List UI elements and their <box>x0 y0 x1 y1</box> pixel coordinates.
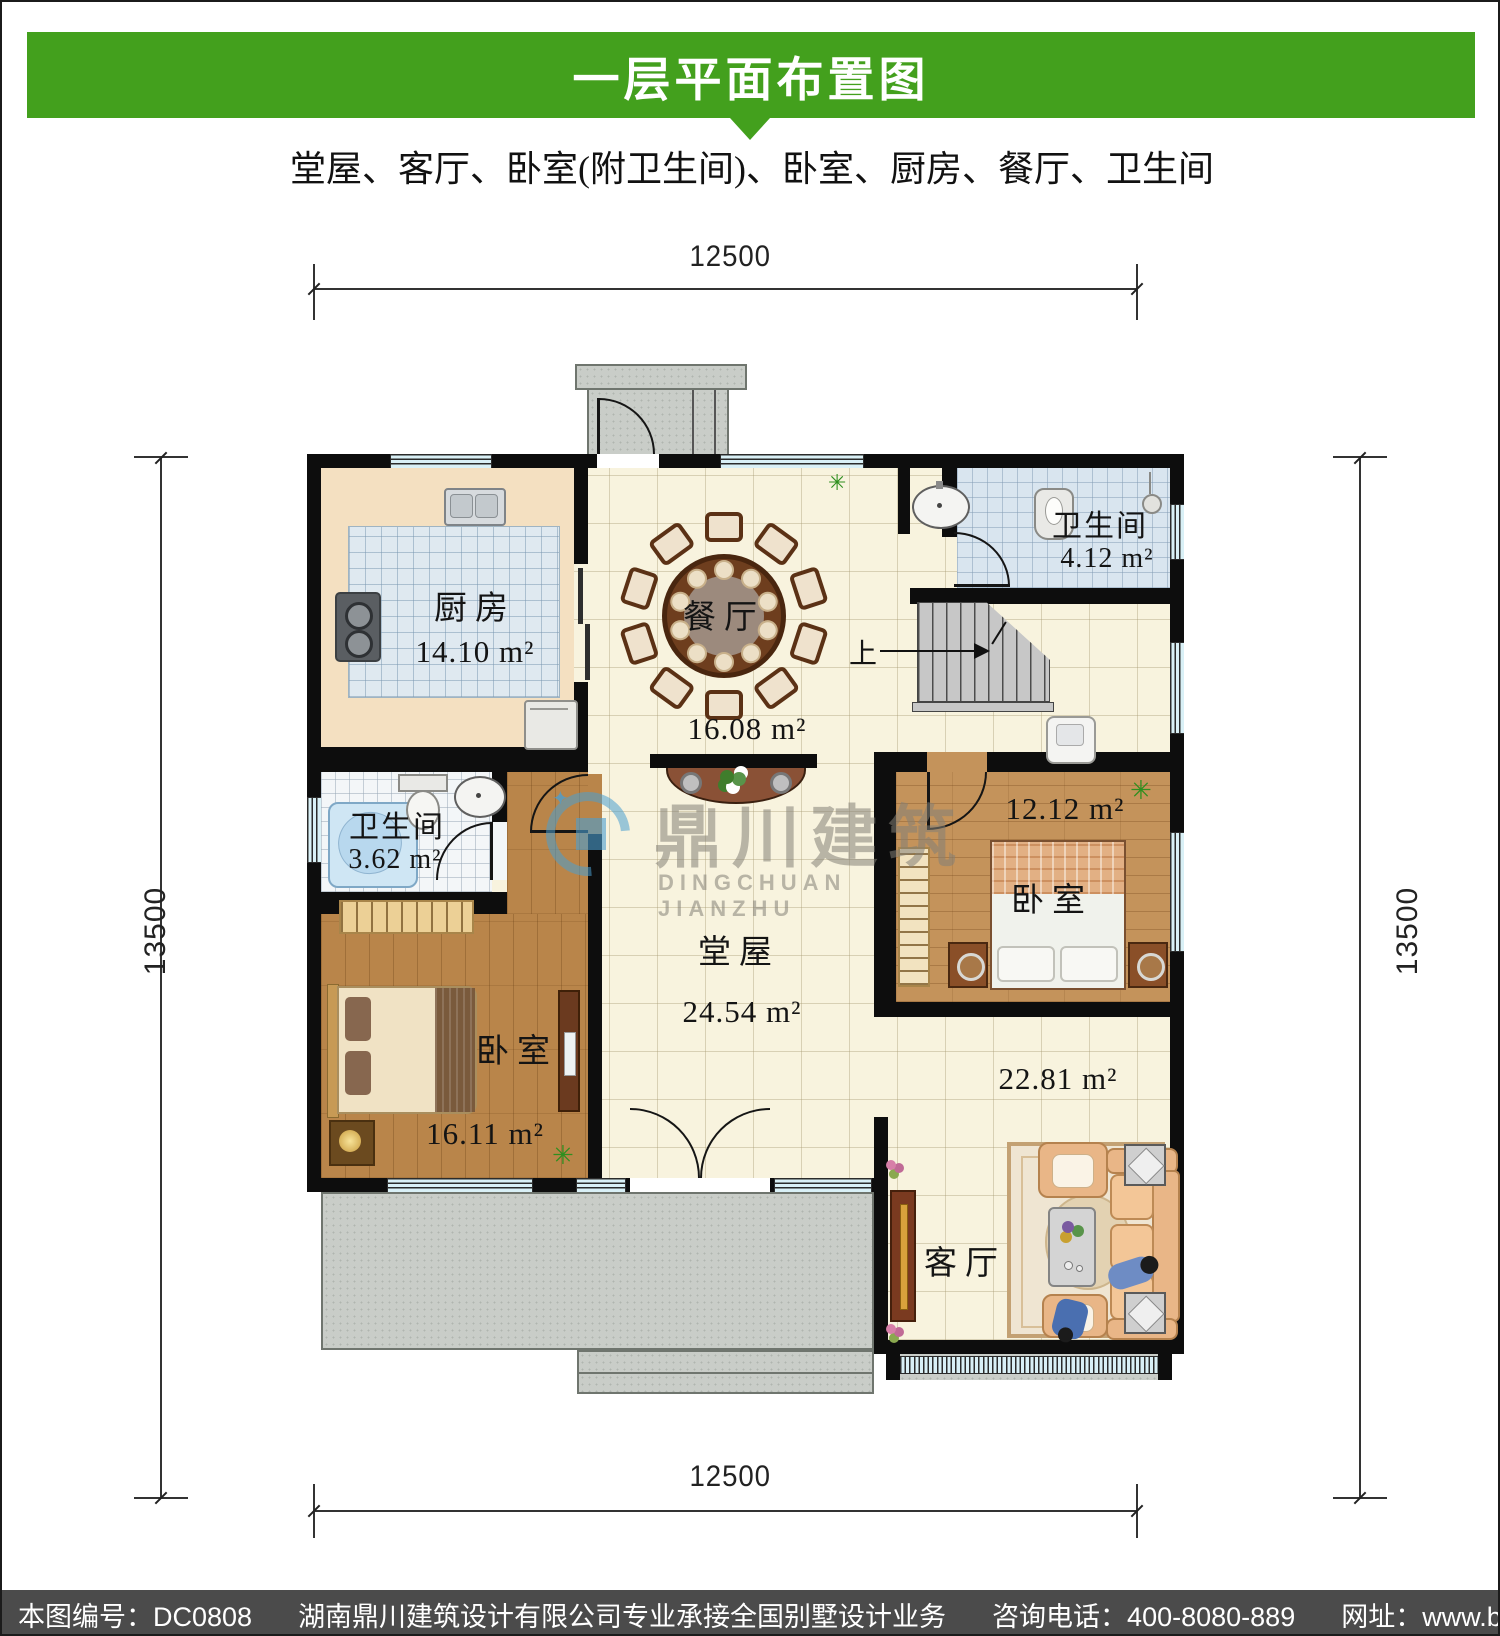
stair-direction-line <box>880 650 980 652</box>
wall-hall-right <box>874 772 896 1002</box>
dim-left-value: 13500 <box>139 887 173 975</box>
door-opening-bath-left <box>492 822 507 880</box>
dining-chair <box>705 512 743 542</box>
wardrobe-right <box>898 847 930 987</box>
wall-bedroom-right-top <box>874 752 1170 772</box>
dim-line-top <box>314 288 1138 290</box>
coffee-table <box>1048 1207 1096 1287</box>
label-hall-name: 堂屋 <box>698 925 780 973</box>
footer-bar: 本图编号：DC0808 湖南鼎川建筑设计有限公司专业承接全国别墅设计业务 咨询电… <box>2 1590 1500 1636</box>
place-setting <box>714 652 734 672</box>
porch-column-line <box>714 390 716 456</box>
footer-phone: 咨询电话：400-8080-889 <box>992 1595 1295 1634</box>
terrace-step-1 <box>577 1350 874 1374</box>
wall-bedroom-right-bottom <box>874 1002 1170 1017</box>
footer-website: 网址：www.bstzcs.com <box>1341 1595 1500 1634</box>
label-living-area: 22.81 m² <box>999 1061 1118 1097</box>
tv-cabinet-living <box>890 1190 916 1322</box>
dim-line-right <box>1359 457 1361 1499</box>
front-terrace <box>321 1192 874 1350</box>
bay-cap <box>886 1354 900 1380</box>
door-opening-bedroom-left <box>588 774 602 834</box>
label-living-name: 客厅 <box>924 1236 1006 1284</box>
door-leaf-back <box>597 398 600 454</box>
label-bedroom-left-name: 卧室 <box>476 1024 558 1072</box>
wall-living-left <box>874 1117 888 1354</box>
armchair-top <box>1038 1142 1108 1198</box>
stair-arrow-icon <box>974 643 990 659</box>
wall-kitchen-right-a <box>574 468 588 564</box>
wall-bottom-living <box>874 1340 1184 1354</box>
plant-icon: ✳ <box>828 472 846 494</box>
label-bedroom-right-name: 卧室 <box>1011 873 1093 921</box>
window-bath-left <box>307 797 321 863</box>
sliding-door-leaf <box>578 568 583 624</box>
window-bedroom-left <box>387 1178 533 1192</box>
page-title: 一层平面布置图 <box>573 41 930 110</box>
kitchen-sink <box>444 488 506 526</box>
flower-pot-icon <box>886 1324 896 1334</box>
window-hall-left <box>576 1178 626 1192</box>
dim-bottom-value: 12500 <box>690 1460 771 1494</box>
stair-landing <box>912 702 1054 712</box>
bedside-lamp <box>329 1120 375 1166</box>
water-dispenser <box>1046 716 1096 764</box>
door-opening-bedroom-right <box>927 752 987 772</box>
sliding-door-leaf <box>585 624 590 680</box>
plant-icon: ✳ <box>1130 777 1152 803</box>
window-kitchen <box>390 454 492 468</box>
window-bedroom-right <box>1170 832 1184 952</box>
door-leaf-bath-upper <box>954 584 1010 587</box>
kitchen-stove <box>335 592 381 662</box>
label-bath-left-area: 3.62 m² <box>348 844 441 876</box>
footer-plan-no: 本图编号：DC0808 <box>18 1595 252 1634</box>
stair-up-label: 上 <box>849 632 877 672</box>
window-stair <box>1170 642 1184 734</box>
bed-left <box>337 986 477 1114</box>
label-kitchen-area: 14.10 m² <box>416 634 535 670</box>
window-bath-upper <box>1170 504 1184 560</box>
label-hall-area: 24.54 m² <box>683 994 802 1030</box>
label-kitchen-name: 厨房 <box>434 581 516 629</box>
label-bath-upper-name: 卫生间 <box>1052 501 1148 545</box>
porch-column-line <box>692 390 694 456</box>
label-bedroom-left-area: 16.11 m² <box>426 1116 544 1152</box>
dim-ext-top-right <box>1136 264 1138 320</box>
door-leaf-bedroom-right <box>927 772 930 830</box>
dim-top-value: 12500 <box>690 240 771 274</box>
title-banner: 一层平面布置图 <box>27 32 1475 118</box>
dim-line-left <box>160 457 162 1499</box>
footer-company: 湖南鼎川建筑设计有限公司专业承接全国别墅设计业务 <box>298 1595 946 1634</box>
tv-cabinet-bedroom <box>558 990 580 1112</box>
end-table <box>1124 1292 1166 1334</box>
shower-stem <box>1149 472 1151 494</box>
door-opening-back <box>597 454 659 468</box>
bay-cap <box>1158 1354 1172 1380</box>
refrigerator <box>524 700 578 750</box>
dim-ext-top-left <box>313 264 315 320</box>
nightstand <box>1128 942 1168 988</box>
label-bedroom-right-area: 12.12 m² <box>1006 791 1125 827</box>
dim-line-bottom <box>314 1510 1138 1512</box>
window-dining <box>720 454 864 468</box>
wall-sink-stub <box>898 468 910 534</box>
dim-right-value: 13500 <box>1391 887 1425 975</box>
door-leaf-bath-left <box>490 822 493 880</box>
bath-basin <box>454 776 506 818</box>
hallway-sink <box>912 485 970 529</box>
door-leaf-bedroom-left <box>530 830 588 833</box>
door-opening-main <box>630 1178 770 1192</box>
nightstand <box>948 942 988 988</box>
window-hall-right <box>774 1178 872 1192</box>
label-dining-area: 16.08 m² <box>688 711 807 747</box>
plant-icon: ✳ <box>552 1142 574 1168</box>
wall-kitchen-bottom <box>307 747 588 772</box>
wall-hall-left <box>588 834 602 1178</box>
floor-plan-page: 一层平面布置图 堂屋、客厅、卧室(附卫生间)、卧室、厨房、餐厅、卫生间 1250… <box>0 0 1500 1636</box>
wall-bath-upper-bottom <box>910 588 1184 604</box>
wall-console <box>650 754 817 768</box>
flower-pot-icon <box>886 1160 896 1170</box>
label-bath-left-name: 卫生间 <box>349 802 445 846</box>
label-dining-name: 餐厅 <box>683 590 765 638</box>
place-setting <box>714 560 734 580</box>
back-porch-slab <box>575 364 747 390</box>
label-bath-upper-area: 4.12 m² <box>1060 543 1153 575</box>
wardrobe-left <box>339 900 474 934</box>
banner-pointer-icon <box>730 118 770 140</box>
window-living-bottom <box>900 1356 1158 1374</box>
end-table <box>1124 1144 1166 1186</box>
terrace-step-2 <box>577 1372 874 1394</box>
room-list-subtitle: 堂屋、客厅、卧室(附卫生间)、卧室、厨房、餐厅、卫生间 <box>2 140 1500 192</box>
